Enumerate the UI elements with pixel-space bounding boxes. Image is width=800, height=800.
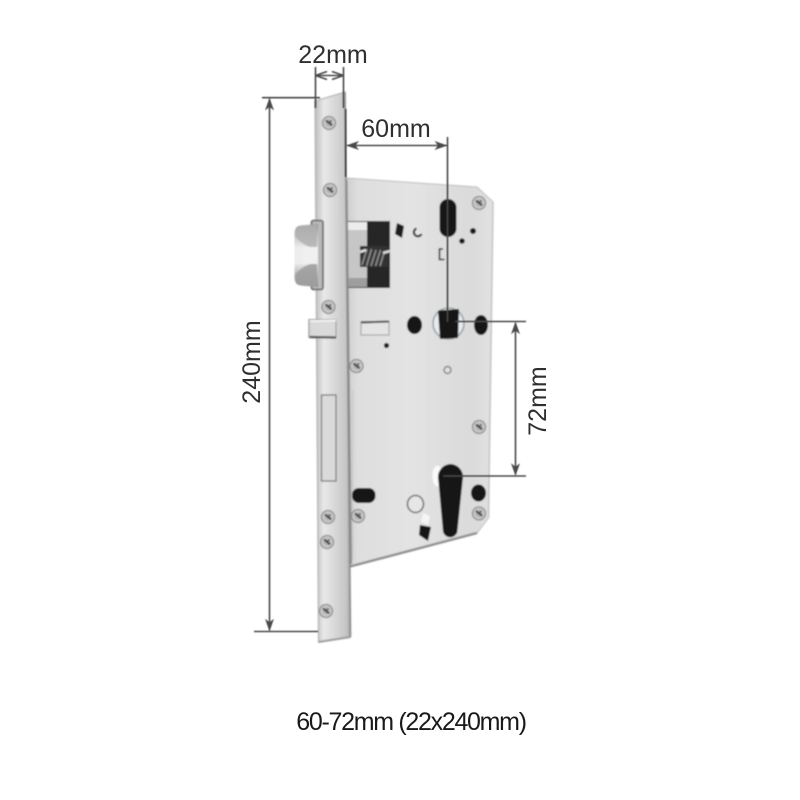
svg-text:22mm: 22mm (298, 41, 367, 69)
svg-text:72mm: 72mm (524, 366, 552, 435)
svg-text:60-72mm (22x240mm): 60-72mm (22x240mm) (296, 708, 525, 736)
svg-text:240mm: 240mm (238, 320, 266, 403)
svg-text:60mm: 60mm (361, 115, 430, 143)
